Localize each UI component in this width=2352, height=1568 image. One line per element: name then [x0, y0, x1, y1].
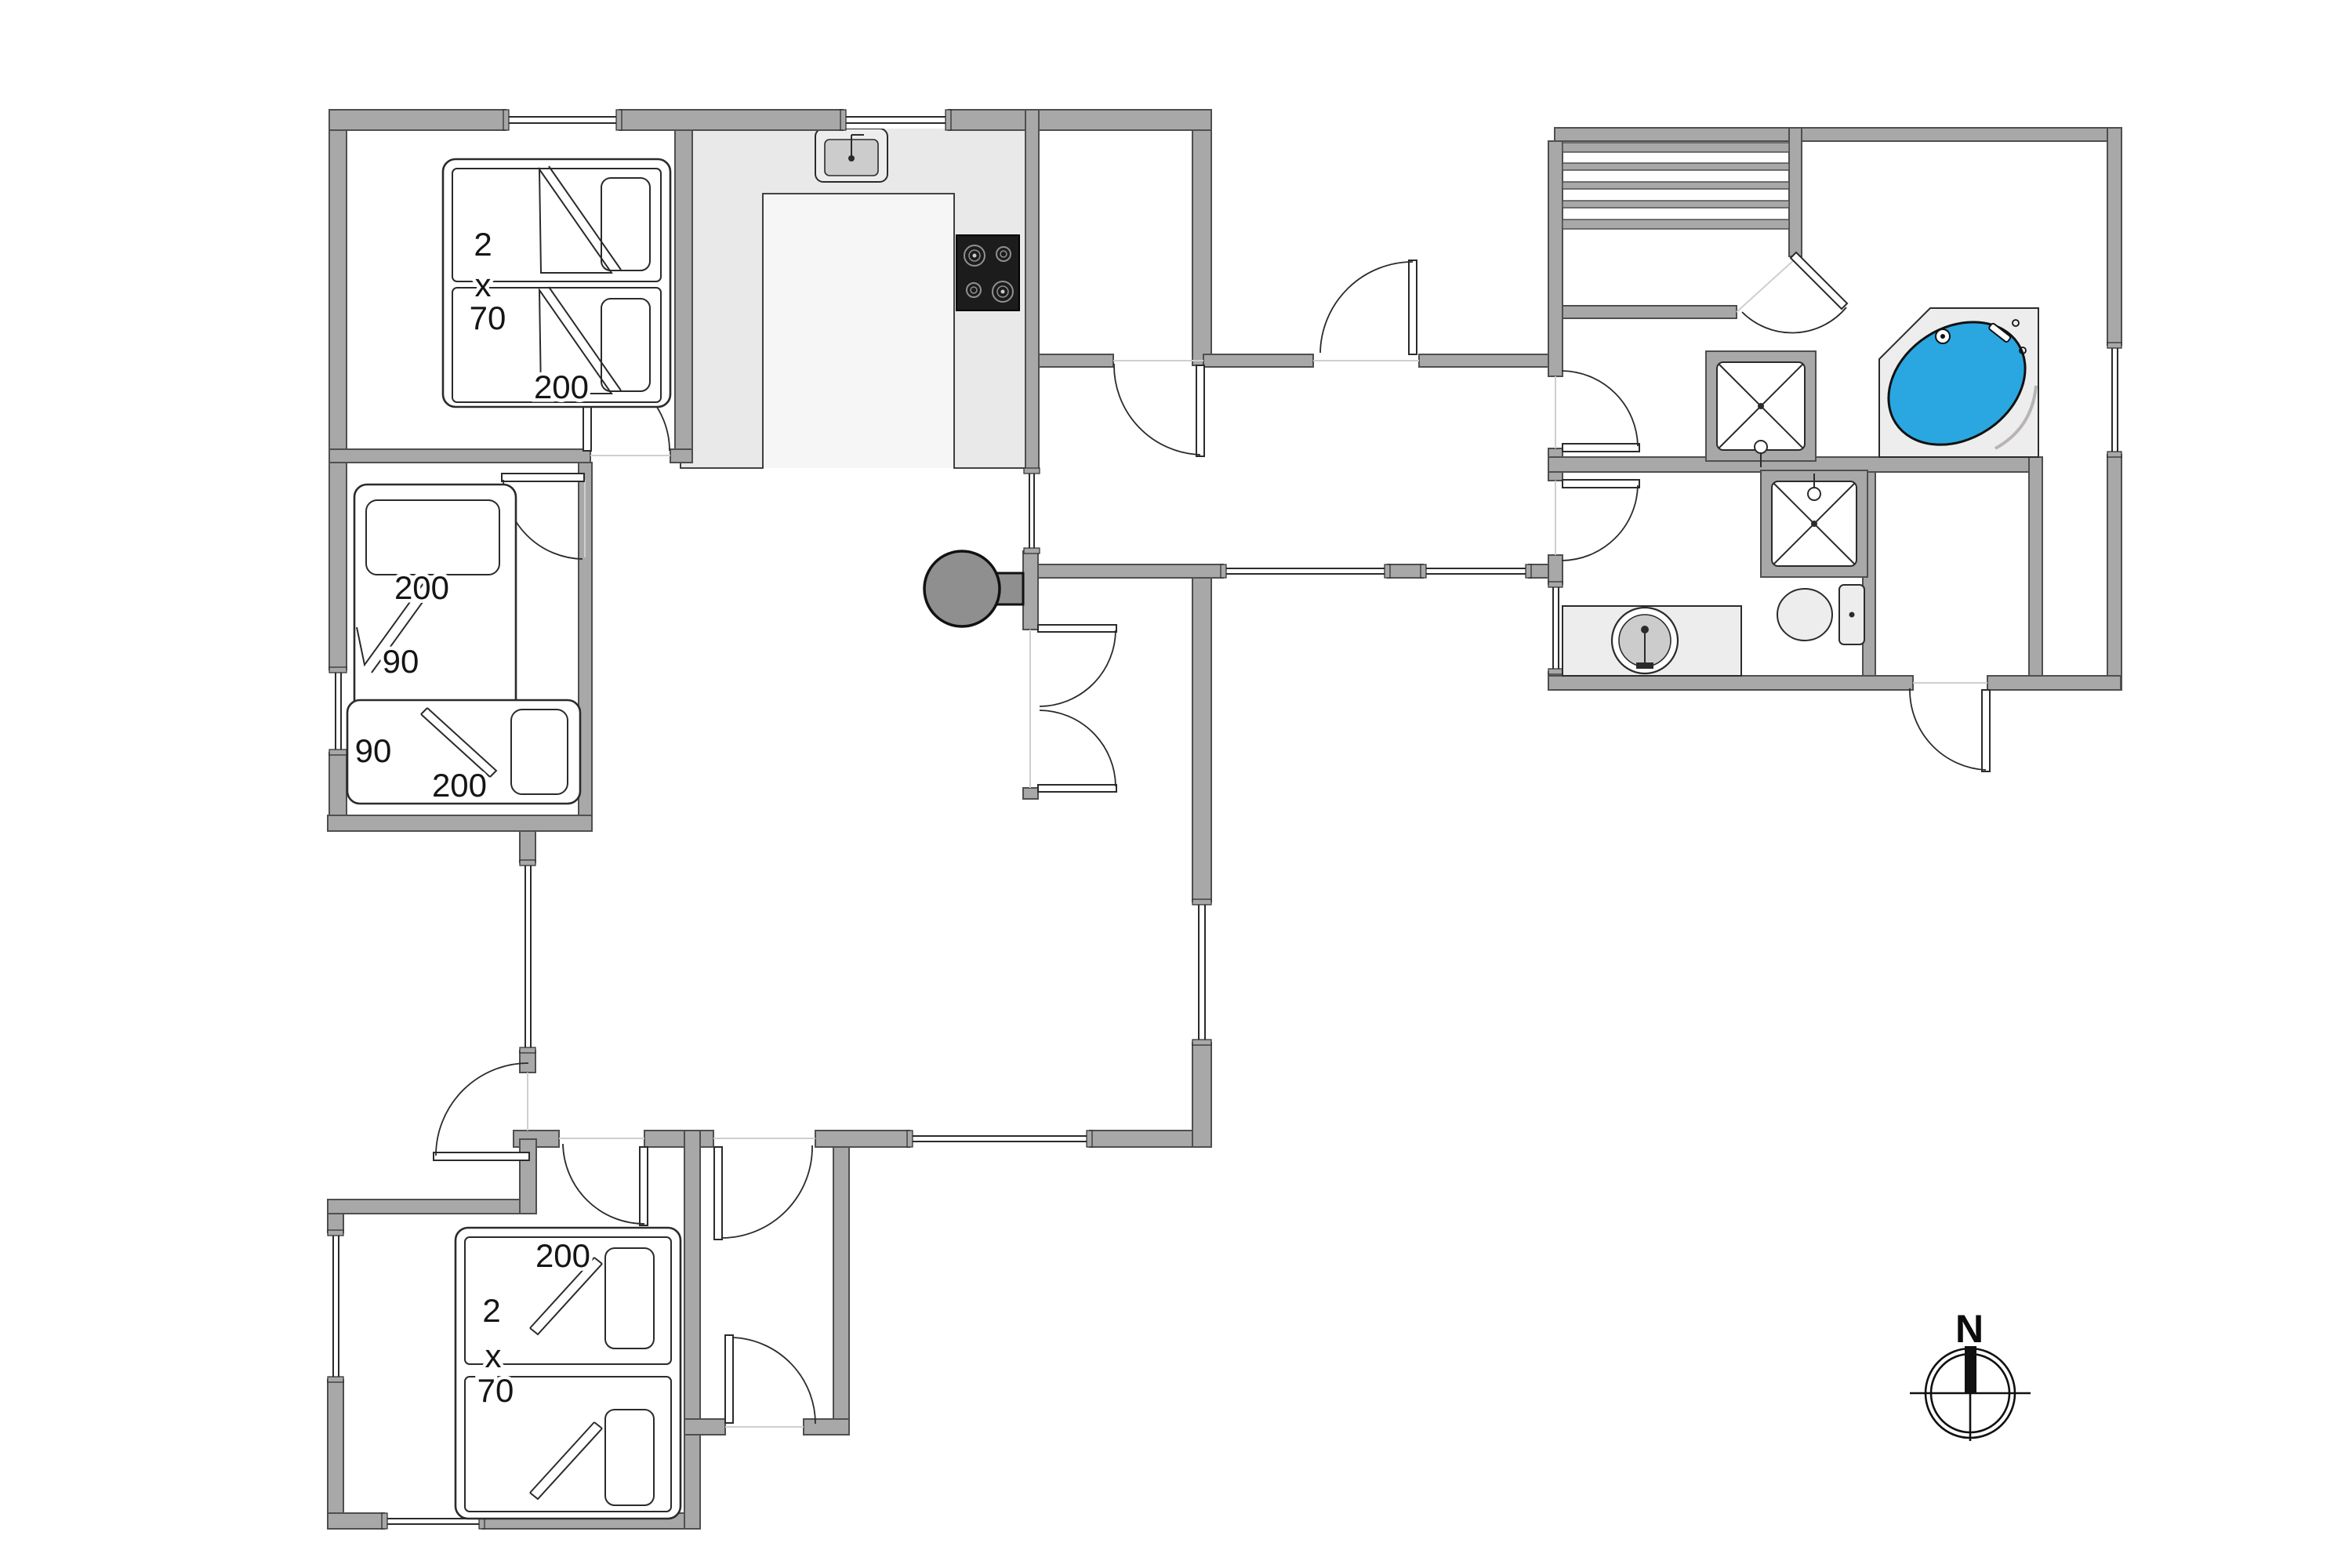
- door-bedroom-sw: [563, 1144, 648, 1225]
- bed-size-label: x: [475, 267, 492, 303]
- kitchen: [681, 122, 1025, 468]
- door-bathroom: [1562, 480, 1639, 561]
- bed-double-sw: 200 2 x 70: [456, 1228, 681, 1519]
- north-needle: [1965, 1346, 1976, 1393]
- window: [503, 110, 622, 130]
- window: [520, 860, 535, 1053]
- door-vestibule-entrance: [725, 1335, 815, 1424]
- bed-size-label: 70: [470, 299, 506, 336]
- bed-size-label: 200: [535, 1237, 590, 1274]
- washbasin-icon: [1563, 606, 1741, 676]
- window: [1548, 582, 1563, 674]
- cooktop-icon: [956, 235, 1019, 310]
- bed-size-label: 70: [477, 1372, 514, 1409]
- window: [1421, 564, 1531, 578]
- wood-stove-icon: [924, 551, 1023, 626]
- door-utility-room: [1114, 364, 1204, 456]
- window: [840, 110, 951, 130]
- door-front-entrance: [1910, 688, 1990, 771]
- bed-size-label: 200: [394, 569, 449, 606]
- window: [2107, 343, 2122, 457]
- spa-bathtub-icon: [1865, 297, 2048, 470]
- door-vestibule-inner: [714, 1145, 812, 1240]
- door-spa-room: [1562, 371, 1639, 452]
- door-back-exterior: [1320, 260, 1417, 354]
- compass-north-label: N: [1955, 1307, 1984, 1351]
- sink-icon: [815, 129, 887, 182]
- bed-size-label: 90: [355, 732, 392, 769]
- window: [328, 1230, 343, 1382]
- bed-size-label: 200: [432, 767, 487, 804]
- window: [1221, 564, 1390, 578]
- sauna-bench-icon: [1563, 143, 1789, 229]
- bed-single-horizontal: 90 200: [347, 700, 580, 804]
- bed-size-label: 200: [534, 368, 589, 405]
- window: [329, 667, 347, 755]
- bed-size-label: 90: [383, 643, 419, 680]
- window: [1024, 468, 1040, 554]
- compass-rose-icon: N: [1910, 1307, 2031, 1441]
- bed-double-nw: 2 x 70 200: [443, 159, 670, 407]
- bed-size-label: 2: [482, 1292, 500, 1329]
- window: [907, 1131, 1092, 1147]
- floor-plan: 2 x 70 200 200 90 90 200 200 2 x 70: [0, 0, 2352, 1568]
- window: [1192, 899, 1211, 1045]
- bed-size-label: 2: [474, 226, 492, 263]
- shower-icon-spa-room: [1706, 351, 1816, 467]
- shower-icon-bathroom: [1761, 470, 1867, 577]
- bed-size-label: x: [485, 1338, 502, 1374]
- toilet-icon: [1777, 585, 1864, 644]
- double-door-living: [1038, 625, 1116, 792]
